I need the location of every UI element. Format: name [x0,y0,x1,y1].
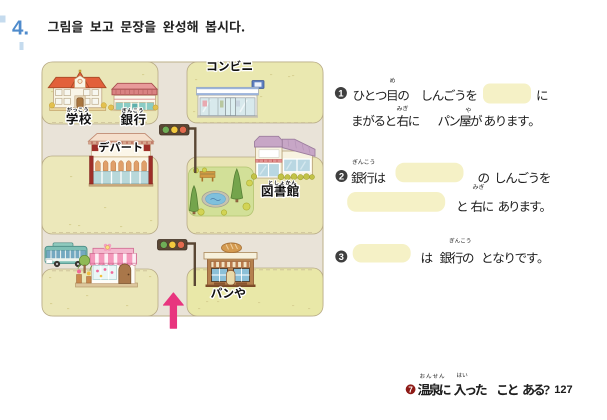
svg-text:3: 3 [339,252,344,263]
svg-text:4.: 4. [12,17,29,40]
svg-text:2: 2 [339,171,344,182]
svg-text:127: 127 [554,384,572,396]
svg-text:1: 1 [338,88,344,99]
svg-text:7: 7 [408,385,413,394]
